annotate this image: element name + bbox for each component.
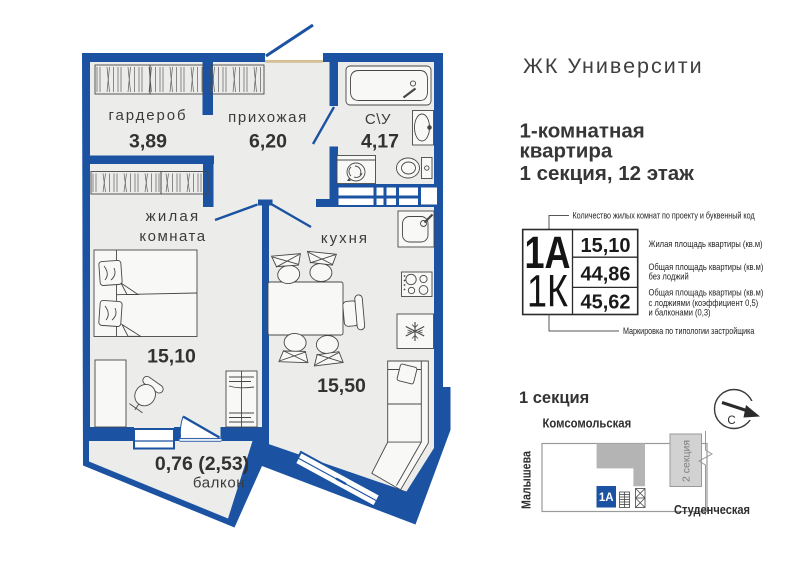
svg-text:2 секция: 2 секция [681,440,693,482]
svg-text:Комсомольская: Комсомольская [543,416,632,431]
svg-text:без лоджий: без лоджий [649,271,690,282]
svg-text:15,10: 15,10 [147,346,196,368]
svg-text:ЖК Университи: ЖК Университи [523,54,704,78]
svg-text:1 секция: 1 секция [519,389,589,407]
svg-text:45,62: 45,62 [580,292,630,314]
svg-text:комната: комната [139,228,206,245]
svg-text:Студенческая: Студенческая [674,502,750,517]
svg-text:1А: 1А [599,492,614,504]
svg-text:15,50: 15,50 [317,375,366,397]
svg-text:Малышева: Малышева [518,451,533,509]
svg-text:жилая: жилая [146,208,201,225]
svg-text:Общая площадь квартиры (кв.м): Общая площадь квартиры (кв.м) [649,287,764,298]
svg-text:Количество жилых комнат по про: Количество жилых комнат по проекту и бук… [573,211,755,221]
svg-text:4,17: 4,17 [361,131,399,153]
svg-text:1 секция, 12 этаж: 1 секция, 12 этаж [520,162,695,185]
svg-text:балкон: балкон [193,475,245,492]
svg-text:1К: 1К [527,266,568,317]
svg-text:0,76 (2,53): 0,76 (2,53) [155,453,249,475]
svg-text:3,89: 3,89 [129,131,167,153]
svg-text:и балконами (0,3): и балконами (0,3) [649,307,711,318]
svg-text:44,86: 44,86 [580,264,630,286]
svg-text:Маркировка по типологии застро: Маркировка по типологии застройщика [623,326,755,336]
svg-text:квартира: квартира [520,140,613,163]
svg-text:С: С [727,415,735,427]
svg-text:6,20: 6,20 [249,131,287,153]
svg-text:Жилая площадь квартиры (кв.м): Жилая площадь квартиры (кв.м) [649,238,763,249]
svg-text:кухня: кухня [321,230,369,247]
svg-text:гардероб: гардероб [108,107,187,124]
svg-text:15,10: 15,10 [580,235,630,257]
svg-text:прихожая: прихожая [228,109,308,126]
svg-text:С\У: С\У [365,111,391,128]
